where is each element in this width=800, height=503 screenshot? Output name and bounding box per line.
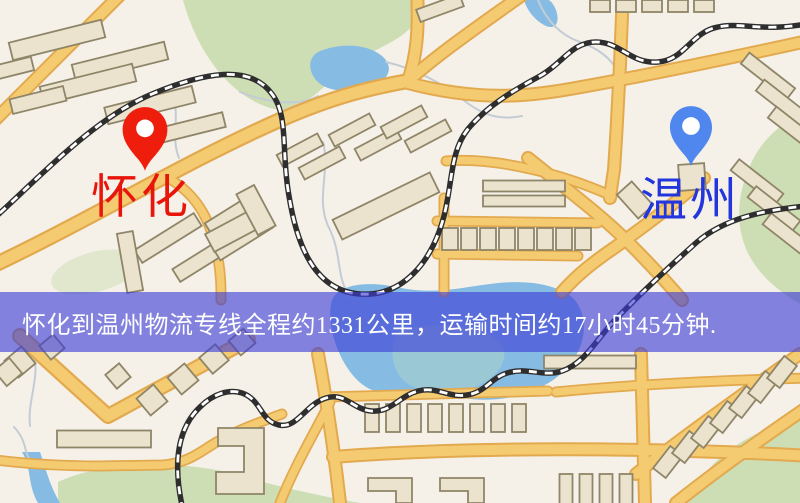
map-canvas [0,0,800,503]
origin-city-label: 怀化 [91,175,191,222]
route-map: 怀化 温州 怀化到温州物流专线全程约1331公里，运输时间约17小时45分钟. [0,0,800,503]
route-info-text: 怀化到温州物流专线全程约1331公里，运输时间约17小时45分钟. [0,305,717,340]
destination-map-pin-icon [668,105,714,167]
origin-map-pin-icon [121,106,169,172]
route-info-banner: 怀化到温州物流专线全程约1331公里，运输时间约17小时45分钟. [0,292,800,352]
destination-city-label: 温州 [640,178,740,225]
